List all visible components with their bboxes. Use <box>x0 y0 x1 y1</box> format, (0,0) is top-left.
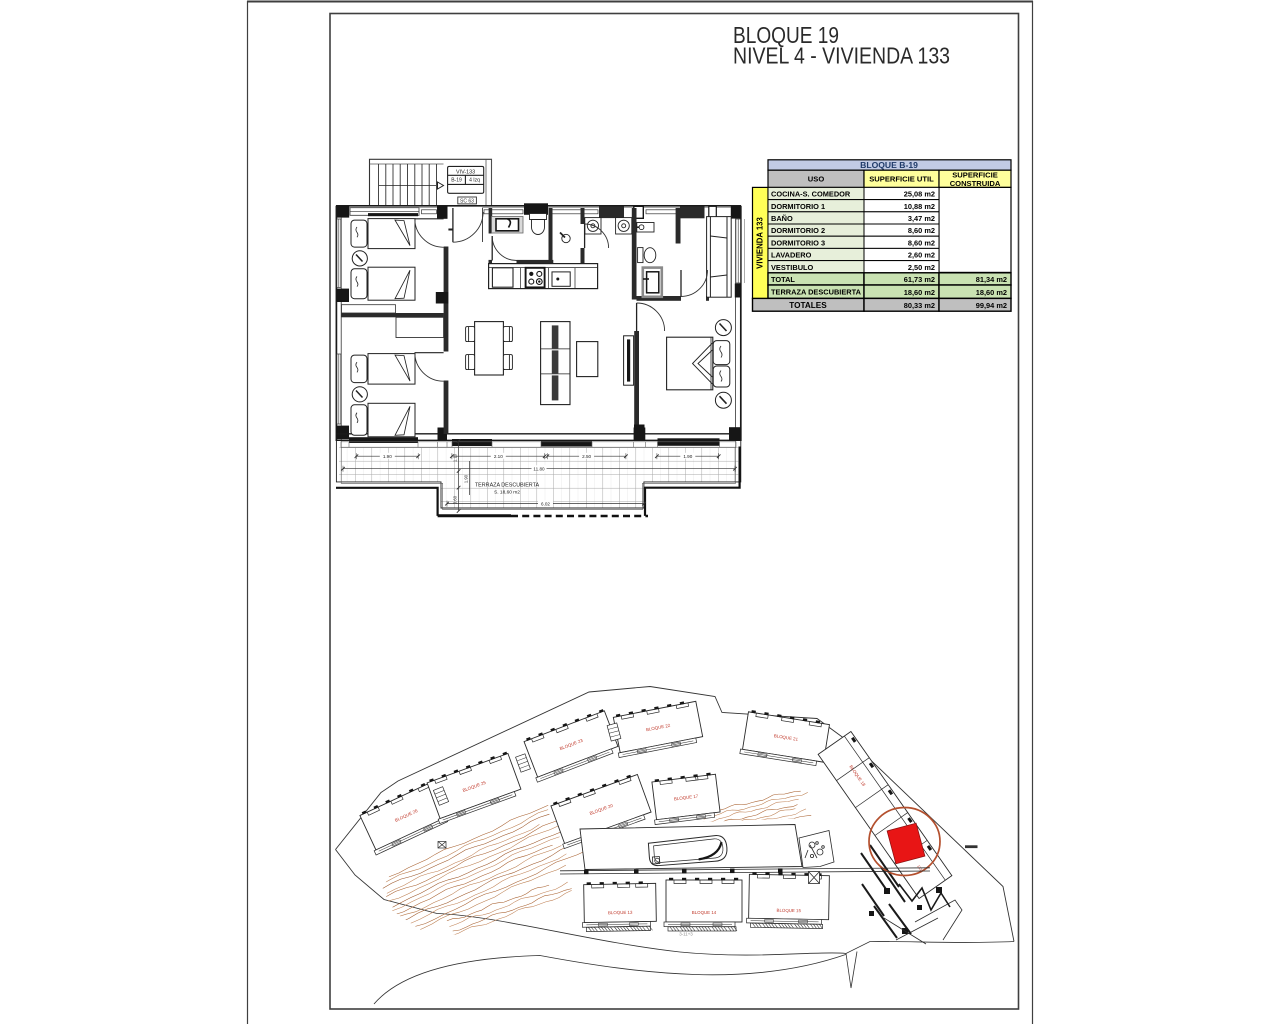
svg-text:VIV-133: VIV-133 <box>456 169 475 175</box>
svg-text:SC 63: SC 63 <box>460 198 474 204</box>
svg-text:LAVADERO: LAVADERO <box>771 251 812 260</box>
svg-text:DORMITORIO 3: DORMITORIO 3 <box>771 238 825 247</box>
svg-text:10,88 m2: 10,88 m2 <box>904 202 935 211</box>
svg-text:BLOQUE 14: BLOQUE 14 <box>692 910 717 915</box>
svg-text:BLOQUE 13: BLOQUE 13 <box>608 910 633 915</box>
svg-text:25,08 m2: 25,08 m2 <box>904 190 935 199</box>
svg-text:3-11+3: 3-11+3 <box>679 932 693 937</box>
svg-text:VESTIBULO: VESTIBULO <box>771 263 814 272</box>
svg-text:BAÑO: BAÑO <box>771 214 793 223</box>
svg-text:8,60 m2: 8,60 m2 <box>908 226 935 235</box>
svg-text:BLOQUE B-19: BLOQUE B-19 <box>860 160 918 170</box>
svg-text:SUPERFICIE UTIL: SUPERFICIE UTIL <box>869 175 934 184</box>
svg-text:99,94 m2: 99,94 m2 <box>976 301 1007 310</box>
svg-text:COCINA-S. COMEDOR: COCINA-S. COMEDOR <box>771 190 851 199</box>
svg-text:0.60: 0.60 <box>453 495 458 504</box>
svg-text:2.50: 2.50 <box>582 454 591 459</box>
svg-text:DORMITORIO 2: DORMITORIO 2 <box>771 226 825 235</box>
svg-text:TERRAZA DESCUBIERTA: TERRAZA DESCUBIERTA <box>475 483 540 489</box>
svg-text:2,50 m2: 2,50 m2 <box>908 263 935 272</box>
svg-text:1.10: 1.10 <box>453 453 458 462</box>
svg-text:VIVIENDA 133: VIVIENDA 133 <box>756 216 765 268</box>
svg-text:USO: USO <box>808 175 825 184</box>
svg-text:18,60 m2: 18,60 m2 <box>904 288 935 297</box>
svg-text:81,34 m2: 81,34 m2 <box>976 275 1007 284</box>
svg-text:4 Izq: 4 Izq <box>469 178 480 184</box>
svg-text:1.90: 1.90 <box>383 454 392 459</box>
svg-text:61,73 m2: 61,73 m2 <box>904 275 935 284</box>
svg-text:6.02: 6.02 <box>541 502 550 507</box>
svg-text:18,60 m2: 18,60 m2 <box>976 288 1007 297</box>
svg-text:DORMITORIO 1: DORMITORIO 1 <box>771 202 825 211</box>
svg-text:TOTAL: TOTAL <box>771 275 795 284</box>
svg-text:2.10: 2.10 <box>494 454 503 459</box>
svg-text:TERRAZA DESCUBIERTA: TERRAZA DESCUBIERTA <box>771 288 862 297</box>
svg-text:CONSTRUIDA: CONSTRUIDA <box>950 179 1001 188</box>
svg-text:80,33 m2: 80,33 m2 <box>904 301 935 310</box>
svg-text:TOTALES: TOTALES <box>789 301 827 310</box>
svg-text:3,47 m2: 3,47 m2 <box>908 214 935 223</box>
svg-text:2,60 m2: 2,60 m2 <box>908 251 935 260</box>
svg-text:S. 18,60 m2: S. 18,60 m2 <box>494 490 520 496</box>
svg-text:8,60 m2: 8,60 m2 <box>908 238 935 247</box>
svg-text:BLOQUE 15: BLOQUE 15 <box>777 908 802 913</box>
svg-text:11.80: 11.80 <box>533 467 545 472</box>
svg-text:1.90: 1.90 <box>683 454 692 459</box>
svg-text:1.90: 1.90 <box>464 474 469 483</box>
svg-text:B-19: B-19 <box>451 178 462 184</box>
svg-text:NIVEL 4 - VIVIENDA 133: NIVEL 4 - VIVIENDA 133 <box>733 43 950 69</box>
